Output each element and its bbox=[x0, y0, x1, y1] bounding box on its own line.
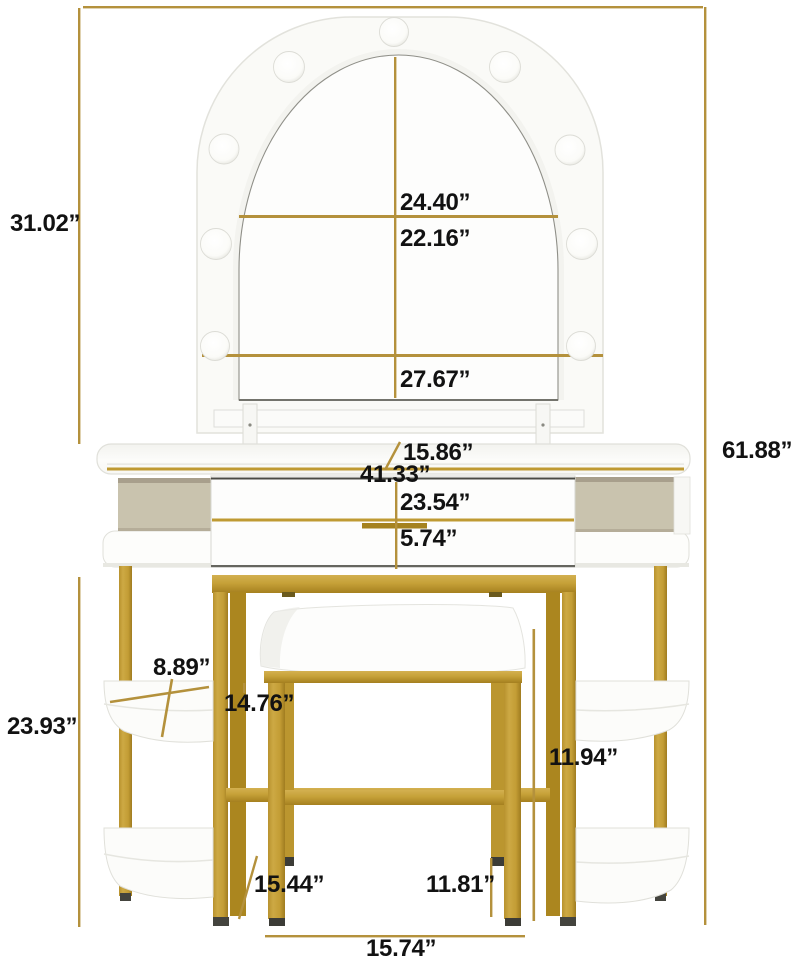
svg-text:23.93”: 23.93” bbox=[7, 713, 77, 740]
svg-text:14.76”: 14.76” bbox=[224, 690, 294, 717]
svg-text:15.74”: 15.74” bbox=[366, 935, 436, 960]
svg-text:24.40”: 24.40” bbox=[400, 189, 470, 216]
svg-text:8.89”: 8.89” bbox=[153, 654, 210, 681]
svg-text:5.74”: 5.74” bbox=[400, 525, 457, 552]
svg-text:23.54”: 23.54” bbox=[400, 489, 470, 516]
svg-text:11.94”: 11.94” bbox=[549, 744, 618, 771]
svg-text:31.02”: 31.02” bbox=[10, 210, 80, 237]
svg-text:27.67”: 27.67” bbox=[400, 366, 470, 393]
svg-text:15.44”: 15.44” bbox=[254, 871, 324, 898]
svg-text:11.81”: 11.81” bbox=[426, 871, 495, 898]
svg-text:41.33”: 41.33” bbox=[360, 461, 430, 488]
svg-text:22.16”: 22.16” bbox=[400, 225, 470, 252]
svg-text:61.88”: 61.88” bbox=[722, 437, 791, 464]
